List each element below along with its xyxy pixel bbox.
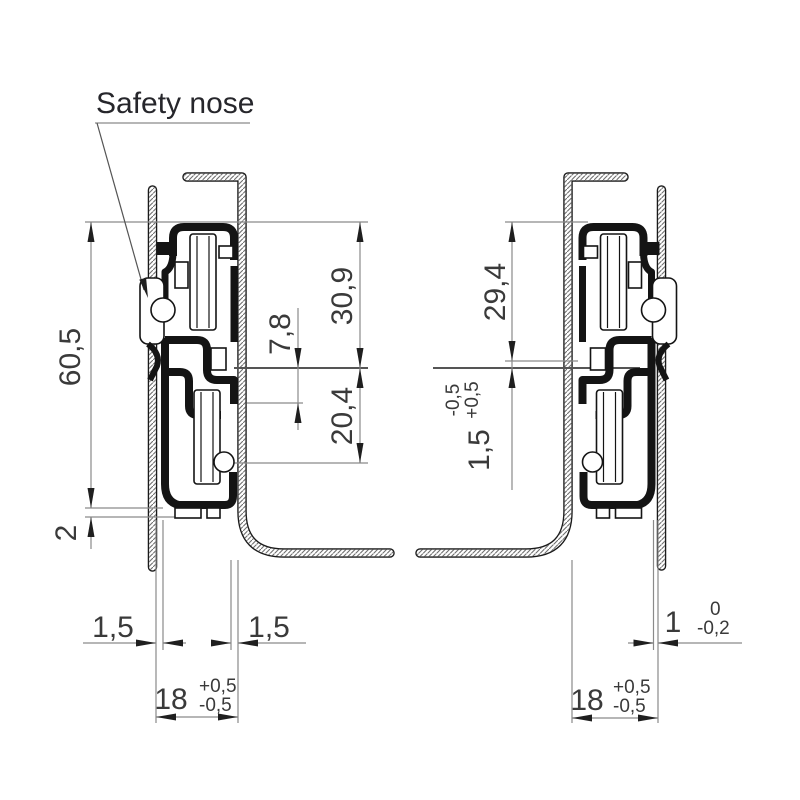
dim-clearance-left-label: 1,5	[92, 611, 134, 644]
dim-offset-label: 1,5	[463, 429, 496, 471]
dim-upper-height-label: 30,9	[326, 267, 359, 325]
dim-width-label: 18	[154, 683, 187, 716]
safety-nose-leader	[97, 123, 144, 290]
dim-mid-offset-label: 7,8	[264, 313, 297, 355]
dim-upper-height-label: 29,4	[479, 263, 512, 321]
dim-width-tol-minus: -0,5	[199, 695, 232, 716]
dim-upper-height: 29,4 1,5 +0,5 -0,5	[443, 222, 516, 490]
dim-upper-height: 30,9 20,4	[326, 222, 364, 463]
dim-foot-height-label: 2	[50, 525, 83, 542]
dim-width-tol-plus: +0,5	[199, 676, 237, 697]
technical-drawing: 60,5 2 30,9 20,4 7,8	[0, 0, 800, 800]
dim-offset-tol-plus: +0,5	[462, 381, 483, 419]
dim-foot-height: 2	[50, 517, 95, 549]
drawing-canvas: 60,5 2 30,9 20,4 7,8	[0, 0, 800, 800]
dim-total-height-label: 60,5	[54, 328, 87, 386]
safety-nose-label: Safety nose	[96, 87, 254, 120]
dim-width-tol-minus: -0,5	[613, 696, 646, 717]
dim-clearance-right: 1,5	[211, 611, 306, 647]
dim-gap-tol-minus: -0,2	[697, 618, 730, 639]
dim-width: 18 +0,5 -0,5	[570, 677, 658, 722]
dim-clearance-right-label: 1,5	[248, 611, 290, 644]
dim-gap-tol-plus: 0	[710, 599, 721, 620]
dim-width-tol-plus: +0,5	[613, 677, 651, 698]
left-view: 60,5 2 30,9 20,4 7,8	[50, 87, 390, 723]
dim-width: 18 +0,5 -0,5	[154, 676, 238, 721]
dim-offset-tol-minus: -0,5	[443, 384, 464, 417]
dim-gap: 1 0 -0,2	[628, 599, 742, 647]
dim-total-height: 60,5	[54, 222, 95, 508]
dim-clearance-left: 1,5	[83, 611, 186, 647]
dim-lower-height-label: 20,4	[326, 387, 359, 445]
right-view: 29,4 1,5 +0,5 -0,5 1 0 -0,2 18 +0,5 -0,5	[420, 177, 742, 723]
dim-width-label: 18	[570, 684, 603, 717]
dim-gap-label: 1	[665, 606, 682, 639]
